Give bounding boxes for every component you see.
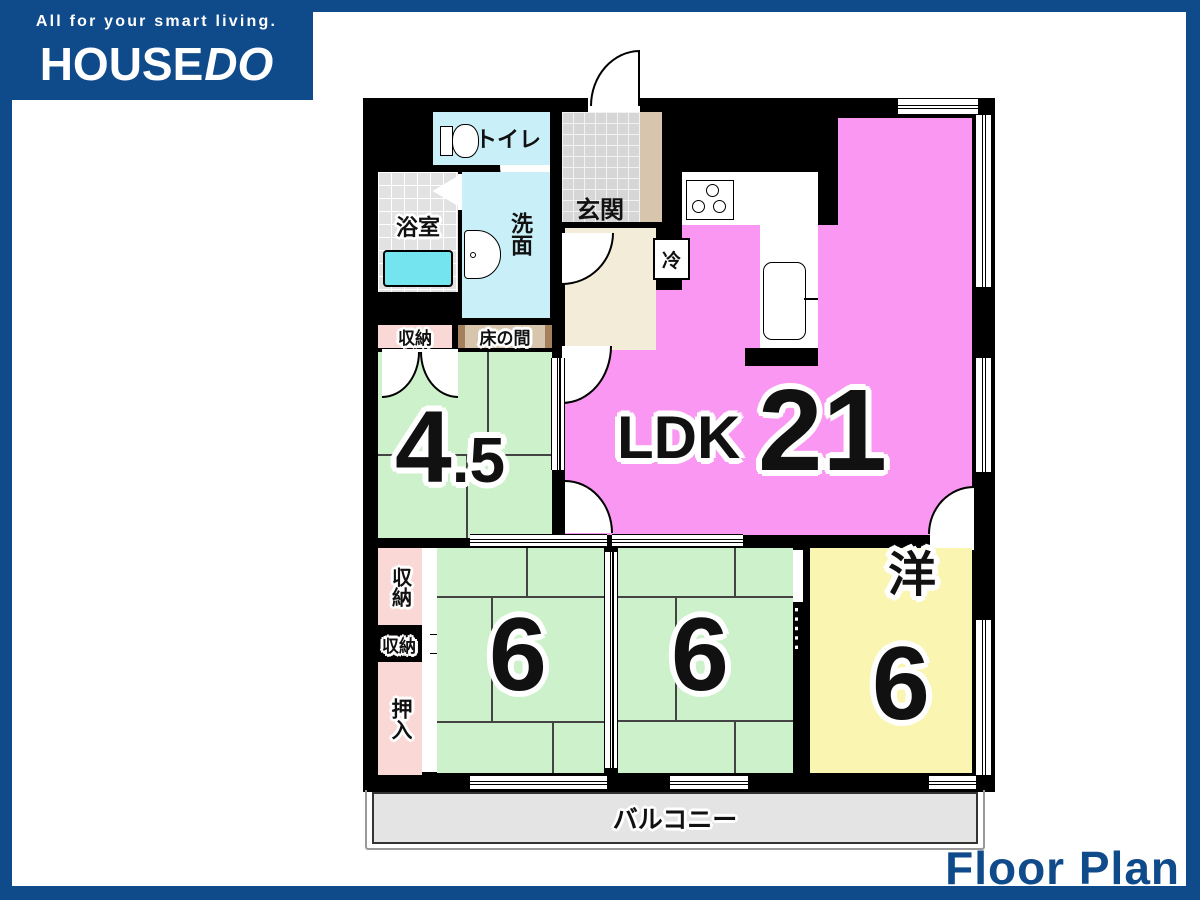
window-right-ldk-lower	[975, 358, 992, 472]
storage-side-upper: 収納	[378, 548, 422, 625]
wall-kitchen-top	[656, 118, 838, 172]
western-door-open-icon	[795, 602, 798, 655]
sliding-door-ldk-6center	[612, 534, 743, 547]
fridge-icon: 冷	[653, 238, 690, 280]
tatami-line	[552, 721, 554, 773]
washbasin-drain-icon	[470, 252, 476, 258]
entrance-step	[640, 112, 662, 222]
sliding-door-6-6	[604, 552, 618, 768]
label-western: 洋	[888, 552, 936, 600]
label-oshiire: 押入	[385, 698, 415, 740]
label-western-size: 6	[872, 632, 930, 736]
label-storage-top: 収納	[398, 324, 432, 349]
logo-tagline: All for your smart living.	[0, 13, 313, 31]
closet-sliding-panel	[422, 548, 437, 772]
stove-burner-icon	[706, 184, 719, 197]
stove-burner-icon	[713, 200, 726, 213]
label-storage-side-upper: 収納	[386, 567, 415, 607]
floor-plan-page: All for your smart living. HOUSEDO Floor…	[0, 0, 1200, 900]
wall-kitchen-stub	[745, 348, 818, 366]
tatami-line	[526, 548, 528, 598]
sliding-door-45-ldk	[551, 358, 565, 470]
kitchen-sink-icon	[763, 262, 806, 340]
label-washroom: 洗面	[503, 212, 537, 312]
tatami-45-whole: 4	[395, 390, 452, 504]
tatami-line	[734, 548, 736, 598]
oshiire: 押入	[378, 662, 422, 775]
logo-word-do: DO	[204, 38, 273, 90]
western-doorway-gap	[793, 550, 803, 602]
label-tatami-6-left: 6	[489, 603, 547, 707]
logo-wordmark: HOUSEDO	[0, 40, 313, 88]
tatami-line	[618, 720, 793, 722]
window-top	[898, 98, 978, 115]
frame-right	[1186, 0, 1200, 900]
tatami-45-fraction: .5	[452, 424, 505, 496]
window-right-ldk-upper	[975, 115, 992, 287]
logo-word-house: HOUSE	[40, 38, 204, 90]
faucet-icon	[804, 298, 818, 300]
window-right-western	[975, 620, 992, 775]
stove-icon	[686, 180, 734, 220]
balcony: バルコニー	[372, 792, 978, 844]
sliding-door-ldk-6left	[470, 534, 607, 547]
wall-kitchen-right	[818, 172, 838, 225]
label-balcony: バルコニー	[613, 800, 738, 836]
bathtub-icon	[383, 250, 453, 287]
housedo-logo: All for your smart living. HOUSEDO	[0, 0, 313, 100]
storage-top: 収納	[378, 325, 452, 348]
tatami-line	[734, 720, 736, 773]
label-bathroom: 浴室	[380, 212, 456, 240]
label-tokonoma: 床の間	[480, 324, 531, 349]
label-storage-side-lower: 収納	[382, 632, 416, 657]
label-ldk: LDK	[617, 408, 740, 468]
balcony-door-left	[470, 775, 607, 790]
label-ldk-size: 21	[758, 372, 887, 488]
storage-side-lower: 収納	[374, 632, 424, 656]
entrance-door-swing-icon	[590, 50, 640, 106]
frame-left	[0, 0, 12, 900]
label-entrance: 玄関	[558, 192, 642, 222]
balcony-door-right	[929, 775, 976, 790]
tokonoma: 床の間	[458, 325, 552, 348]
label-toilet: トイレ	[468, 122, 548, 154]
tatami-line	[437, 721, 604, 723]
balcony-door-center	[670, 775, 748, 790]
label-tatami-45: 4.5	[395, 396, 505, 498]
stove-burner-icon	[692, 200, 705, 213]
label-tatami-6-center: 6	[671, 603, 729, 707]
